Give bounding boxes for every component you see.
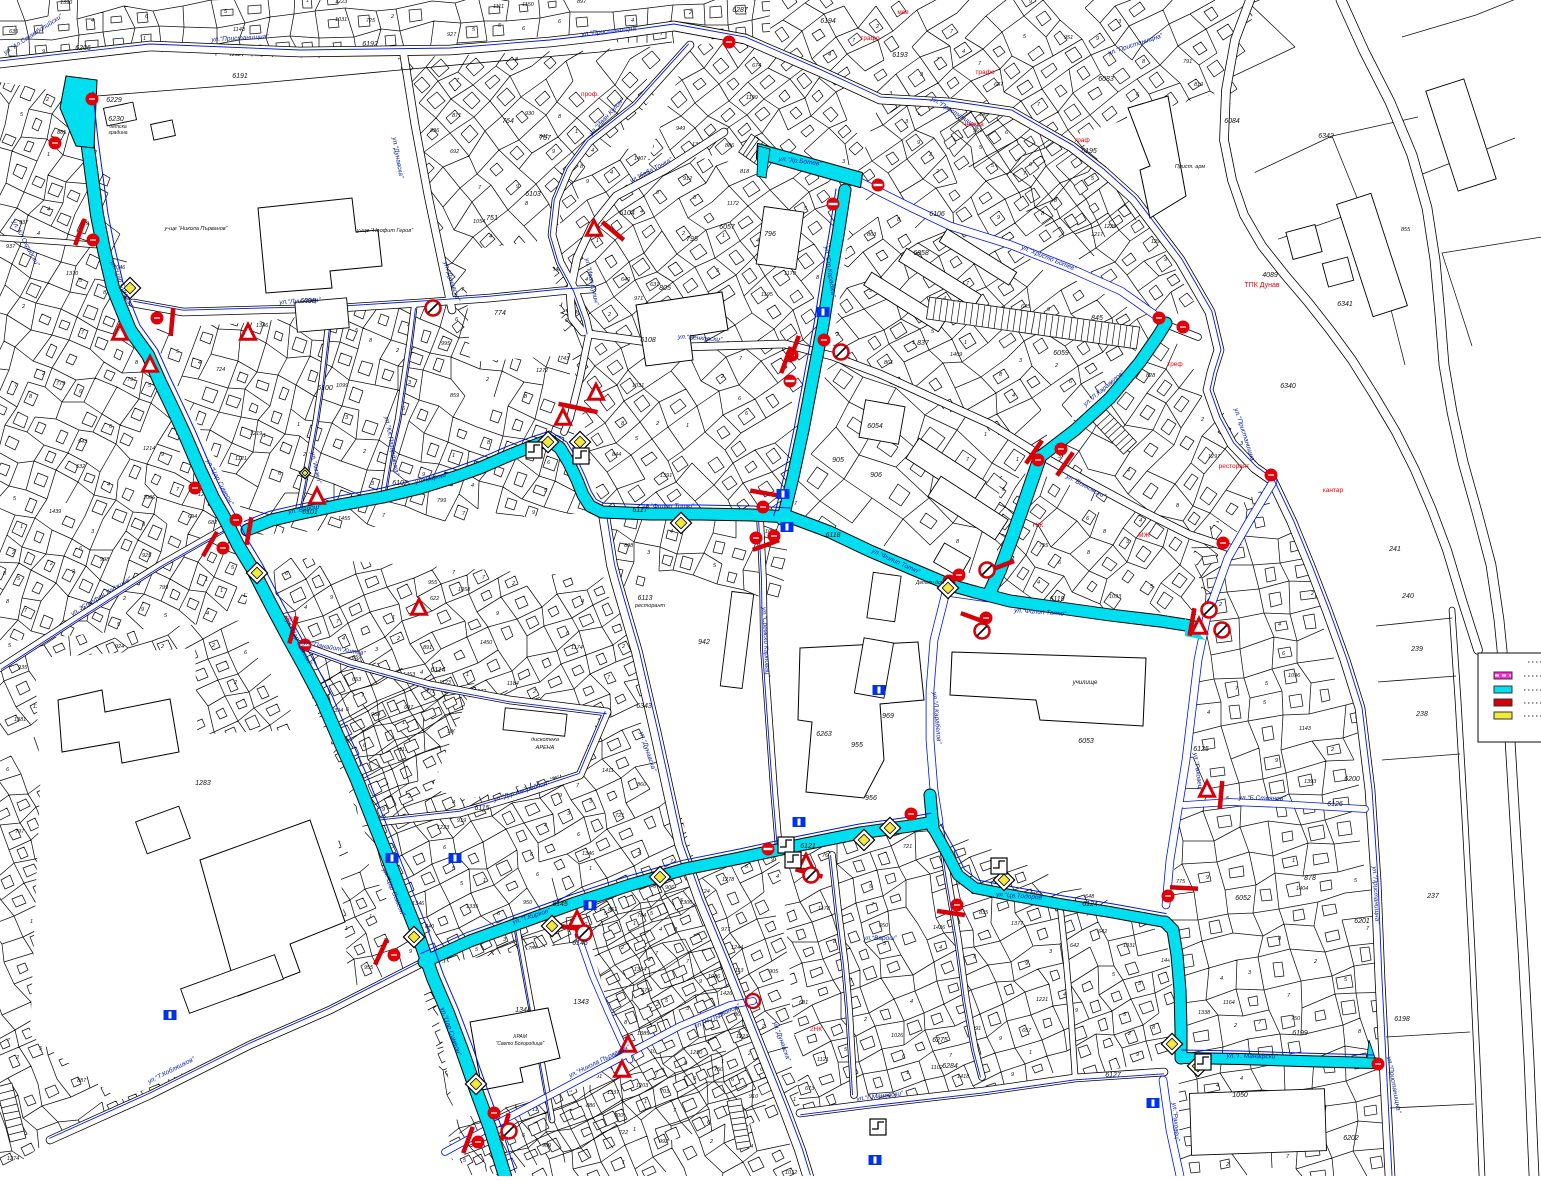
svg-text:9: 9	[496, 611, 499, 617]
svg-text:4: 4	[591, 148, 594, 154]
svg-text:трафо: трафо	[860, 35, 880, 42]
svg-text:1393: 1393	[1304, 779, 1317, 785]
svg-text:6108: 6108	[640, 337, 656, 344]
svg-text:4: 4	[471, 483, 474, 489]
svg-text:648: 648	[1085, 894, 1095, 900]
svg-text:743: 743	[560, 356, 570, 362]
svg-text:767: 767	[539, 135, 552, 142]
svg-text:750: 750	[714, 1067, 724, 1073]
svg-text:2: 2	[45, 97, 49, 103]
svg-text:1283: 1283	[195, 780, 211, 787]
svg-text:844: 844	[612, 452, 621, 458]
svg-text:642: 642	[1070, 943, 1079, 949]
svg-text:795: 795	[686, 236, 698, 243]
svg-text:1306: 1306	[680, 900, 693, 906]
svg-text:6192: 6192	[362, 41, 378, 48]
svg-text:855: 855	[1401, 227, 1411, 233]
svg-text:835: 835	[979, 910, 989, 916]
svg-text:1109: 1109	[746, 95, 758, 101]
svg-text:9: 9	[1136, 1052, 1139, 1058]
svg-text:9: 9	[552, 149, 555, 155]
svg-text:2: 2	[396, 636, 400, 642]
svg-text:632: 632	[76, 464, 85, 470]
svg-text:4: 4	[610, 170, 613, 176]
svg-text:1102: 1102	[931, 1065, 943, 1071]
svg-text:779: 779	[56, 381, 65, 387]
svg-text:1426: 1426	[933, 925, 946, 931]
svg-text:1093: 1093	[1109, 594, 1122, 600]
svg-text:2: 2	[21, 304, 25, 310]
svg-text:6199: 6199	[1292, 1030, 1308, 1037]
svg-text:1012: 1012	[785, 1170, 797, 1176]
svg-text:ТПК Дунав: ТПК Дунав	[1244, 282, 1279, 289]
svg-text:2: 2	[41, 371, 45, 377]
svg-text:1455: 1455	[338, 516, 351, 522]
svg-text:1338: 1338	[1198, 1010, 1211, 1016]
svg-text:4: 4	[1063, 992, 1066, 998]
svg-text:2: 2	[362, 449, 366, 455]
svg-text:955: 955	[364, 965, 374, 971]
svg-text:дискотека: дискотека	[531, 737, 559, 743]
svg-text:4: 4	[1216, 1083, 1219, 1089]
svg-text:998: 998	[100, 557, 110, 563]
svg-text:886: 886	[725, 143, 735, 149]
svg-text:2: 2	[747, 1051, 751, 1057]
svg-text:МЖ: МЖ	[1138, 532, 1149, 539]
svg-text:4: 4	[47, 207, 50, 213]
svg-text:1143: 1143	[1299, 726, 1312, 732]
svg-text:9: 9	[161, 452, 164, 458]
svg-text:4: 4	[489, 234, 492, 240]
svg-text:4089: 4089	[1262, 272, 1278, 279]
svg-text:6084: 6084	[1224, 118, 1240, 125]
svg-text:мсв: мсв	[897, 9, 909, 16]
svg-text:2: 2	[863, 1017, 867, 1023]
svg-text:905: 905	[769, 969, 779, 975]
svg-text:1: 1	[30, 919, 33, 925]
svg-text:2: 2	[935, 169, 939, 175]
svg-text:9: 9	[917, 140, 920, 146]
svg-text:6098: 6098	[300, 298, 316, 305]
svg-text:1: 1	[205, 577, 208, 583]
svg-text:4: 4	[828, 52, 831, 58]
svg-text:673: 673	[805, 1086, 815, 1092]
svg-text:2: 2	[1200, 417, 1204, 423]
svg-text:6100: 6100	[317, 385, 333, 392]
svg-text:2: 2	[709, 1139, 713, 1145]
svg-text:6127: 6127	[1105, 1072, 1122, 1079]
svg-text:1335: 1335	[466, 904, 479, 910]
svg-text:проф.: проф.	[581, 91, 599, 98]
svg-text:6113: 6113	[637, 595, 652, 602]
svg-text:9: 9	[1096, 36, 1099, 42]
svg-text:6341: 6341	[1337, 301, 1353, 308]
svg-text:6058: 6058	[913, 250, 929, 257]
svg-text:955: 955	[428, 580, 438, 586]
svg-text:1: 1	[633, 921, 636, 927]
svg-text:9: 9	[999, 1036, 1002, 1042]
svg-text:2: 2	[655, 421, 659, 427]
svg-text:751: 751	[486, 215, 498, 222]
svg-text:2: 2	[761, 1024, 765, 1030]
svg-text:645: 645	[1021, 304, 1031, 310]
svg-text:924: 924	[115, 644, 124, 650]
svg-text:9: 9	[1029, 0, 1032, 5]
svg-text:1054: 1054	[473, 219, 485, 225]
svg-text:2: 2	[875, 24, 879, 30]
svg-text:4: 4	[962, 49, 965, 55]
svg-text:1: 1	[721, 1059, 724, 1065]
svg-text:927: 927	[447, 32, 457, 38]
svg-text:1: 1	[984, 432, 987, 438]
svg-text:9: 9	[1164, 257, 1167, 263]
svg-text:9: 9	[1075, 1008, 1078, 1014]
svg-text:1219: 1219	[250, 431, 262, 437]
svg-text:1: 1	[220, 588, 223, 594]
svg-text:992: 992	[659, 1139, 668, 1145]
svg-text:9: 9	[1025, 961, 1028, 967]
svg-text:9: 9	[382, 807, 385, 813]
svg-text:863: 863	[867, 232, 877, 238]
svg-text:1195: 1195	[761, 292, 774, 298]
svg-text:1: 1	[47, 152, 50, 158]
svg-text:1439: 1439	[49, 509, 61, 515]
svg-text:687: 687	[994, 82, 1004, 88]
svg-text:2: 2	[122, 596, 126, 602]
svg-text:1274: 1274	[7, 1156, 19, 1162]
svg-text:2: 2	[621, 644, 625, 650]
svg-text:912: 912	[683, 176, 692, 182]
svg-text:6059: 6059	[1053, 350, 1069, 357]
svg-text:1418: 1418	[957, 1074, 970, 1080]
svg-text:2: 2	[1127, 1031, 1131, 1037]
svg-text:9: 9	[586, 179, 589, 185]
svg-text:4: 4	[910, 999, 913, 1005]
svg-text:1343: 1343	[573, 999, 589, 1006]
svg-text:2НК: 2НК	[810, 1026, 822, 1033]
svg-text:9: 9	[86, 221, 89, 227]
svg-text:2: 2	[407, 794, 411, 800]
svg-text:9: 9	[1206, 875, 1209, 881]
svg-text:1: 1	[912, 340, 915, 346]
svg-text:9: 9	[532, 510, 535, 516]
svg-text:4: 4	[670, 529, 673, 535]
svg-text:1390: 1390	[60, 0, 73, 6]
svg-text:1344: 1344	[515, 1007, 531, 1014]
svg-text:1: 1	[297, 422, 300, 428]
svg-text:1: 1	[686, 423, 689, 429]
svg-text:721: 721	[615, 813, 624, 819]
svg-text:1331: 1331	[1123, 943, 1135, 949]
svg-text:1: 1	[1016, 457, 1019, 463]
svg-text:1: 1	[306, 0, 309, 4]
svg-text:1: 1	[466, 672, 469, 678]
svg-text:724: 724	[216, 367, 225, 373]
svg-text:681: 681	[799, 1000, 808, 1006]
svg-text:1: 1	[633, 1127, 636, 1133]
svg-text:818: 818	[740, 169, 750, 175]
svg-text:1297: 1297	[1208, 454, 1221, 460]
svg-text:2: 2	[390, 14, 394, 20]
svg-text:622: 622	[430, 596, 439, 602]
svg-text:трафо: трафо	[975, 69, 995, 76]
svg-text:692: 692	[450, 149, 459, 155]
svg-text:774: 774	[494, 310, 506, 317]
svg-text:791: 791	[1183, 59, 1192, 65]
svg-text:6106: 6106	[929, 211, 945, 218]
svg-text:1: 1	[263, 433, 266, 439]
svg-text:942: 942	[698, 639, 710, 646]
svg-text:2: 2	[1225, 1162, 1229, 1168]
svg-text:1411: 1411	[602, 768, 614, 774]
svg-text:ул.“Филип Тотю”: ул.“Филип Тотю”	[641, 503, 695, 510]
svg-text:2: 2	[1330, 747, 1334, 753]
svg-text:2: 2	[1313, 959, 1317, 965]
svg-text:4: 4	[342, 636, 345, 642]
svg-text:6102: 6102	[392, 480, 408, 487]
svg-text:у-ще “Никола Първанов”: у-ще “Никола Първанов”	[164, 226, 229, 232]
svg-text:2: 2	[1054, 363, 1058, 369]
svg-text:2: 2	[928, 152, 932, 158]
svg-text:885: 885	[57, 130, 67, 136]
svg-text:2: 2	[1233, 1023, 1237, 1029]
svg-text:1121: 1121	[235, 456, 247, 462]
svg-text:у-ще “Неофит Геров”: у-ще “Неофит Геров”	[356, 228, 414, 234]
svg-text:909: 909	[542, 1143, 551, 1149]
svg-text:845: 845	[1091, 315, 1103, 322]
svg-text:650: 650	[879, 923, 889, 929]
svg-text:6229: 6229	[106, 97, 122, 104]
svg-text:2: 2	[511, 581, 515, 587]
svg-text:819: 819	[1194, 82, 1203, 88]
svg-text:1031: 1031	[335, 17, 347, 23]
svg-text:675: 675	[641, 988, 651, 994]
svg-text:240: 240	[1401, 593, 1414, 600]
svg-text:2: 2	[49, 561, 53, 567]
svg-text:6230: 6230	[108, 116, 124, 123]
svg-text:9: 9	[559, 793, 562, 799]
svg-text:797: 797	[127, 377, 137, 383]
svg-text:6125: 6125	[1193, 746, 1209, 753]
svg-text:910: 910	[749, 1094, 759, 1100]
svg-text:1184: 1184	[507, 681, 519, 687]
svg-text:1426: 1426	[720, 991, 733, 997]
svg-text:241: 241	[1388, 546, 1401, 553]
svg-text:1: 1	[964, 340, 967, 346]
svg-text:траф: траф	[1074, 137, 1090, 144]
svg-text:799: 799	[437, 498, 446, 504]
svg-text:6191: 6191	[232, 73, 248, 80]
svg-text:1174: 1174	[571, 645, 583, 651]
svg-text:1: 1	[589, 866, 592, 872]
svg-text:828: 828	[1146, 373, 1156, 379]
svg-text:6053: 6053	[1078, 738, 1094, 745]
svg-text:969: 969	[882, 713, 894, 720]
svg-text:9: 9	[141, 607, 144, 613]
svg-text:2: 2	[1310, 591, 1314, 597]
svg-text:4: 4	[638, 850, 641, 856]
svg-text:861: 861	[884, 360, 893, 366]
svg-text:1172: 1172	[727, 201, 739, 207]
svg-text:Черква: Черква	[962, 121, 984, 128]
svg-text:ул.“Г. Манафски”: ул.“Г. Манафски”	[1225, 1053, 1278, 1061]
svg-text:НЖ: НЖ	[1033, 522, 1044, 529]
svg-text:674: 674	[752, 63, 761, 69]
svg-text:4: 4	[304, 605, 307, 611]
svg-text:657: 657	[1022, 1028, 1032, 1034]
svg-text:Детски дом: Детски дом	[915, 580, 945, 586]
svg-text:1346: 1346	[256, 323, 269, 329]
svg-text:1111: 1111	[493, 4, 504, 10]
svg-text:6126: 6126	[1327, 801, 1343, 808]
svg-text:2: 2	[647, 957, 651, 963]
svg-text:703: 703	[660, 1089, 670, 1095]
svg-text:2: 2	[620, 945, 624, 951]
svg-text:6114: 6114	[430, 667, 445, 674]
svg-text:950: 950	[523, 900, 533, 906]
svg-text:2: 2	[532, 689, 536, 695]
svg-text:1: 1	[575, 129, 578, 135]
svg-text:1: 1	[483, 878, 486, 884]
svg-text:6263: 6263	[816, 731, 832, 738]
svg-text:Прист. арм: Прист. арм	[1175, 164, 1205, 170]
svg-text:ресторант: ресторант	[1219, 463, 1250, 470]
svg-text:642: 642	[1098, 929, 1107, 935]
svg-text:1096: 1096	[1288, 673, 1301, 679]
svg-text:1370: 1370	[66, 271, 79, 277]
svg-text:871: 871	[452, 113, 461, 119]
svg-text:775: 775	[1176, 879, 1186, 885]
svg-text:1: 1	[345, 926, 348, 932]
svg-text:6054: 6054	[867, 423, 883, 430]
svg-text:238: 238	[1415, 711, 1428, 718]
svg-text:4: 4	[107, 482, 110, 488]
svg-text:725: 725	[366, 18, 376, 24]
svg-text:1381: 1381	[14, 717, 26, 723]
svg-text:4: 4	[1278, 622, 1281, 628]
svg-text:808: 808	[624, 543, 634, 549]
svg-text:2: 2	[302, 452, 306, 458]
svg-text:1377: 1377	[1011, 921, 1024, 927]
svg-text:1404: 1404	[1296, 886, 1308, 892]
svg-text:1: 1	[452, 453, 455, 459]
svg-text:721: 721	[903, 844, 912, 850]
svg-text:1: 1	[369, 914, 372, 920]
svg-text:653: 653	[352, 677, 362, 683]
svg-text:4: 4	[544, 823, 547, 829]
svg-text:4: 4	[1207, 710, 1210, 716]
svg-text:4: 4	[756, 238, 759, 244]
svg-text:ул.“Варош”: ул.“Варош”	[862, 935, 897, 942]
svg-text:1: 1	[143, 36, 146, 42]
svg-text:2: 2	[688, 10, 692, 16]
svg-text:АРЕНА: АРЕНА	[535, 745, 555, 751]
svg-text:1469: 1469	[950, 352, 962, 358]
svg-text:6145: 6145	[552, 901, 568, 908]
svg-text:2: 2	[11, 550, 15, 556]
svg-text:2: 2	[835, 332, 839, 338]
svg-text:6206: 6206	[75, 45, 91, 52]
svg-text:4: 4	[206, 611, 209, 617]
svg-text:1: 1	[722, 233, 725, 239]
svg-text:764: 764	[502, 118, 514, 125]
svg-text:2: 2	[211, 643, 215, 649]
svg-text:6200: 6200	[1344, 776, 1360, 783]
svg-text:1: 1	[906, 1070, 909, 1076]
svg-text:1272: 1272	[536, 368, 548, 374]
svg-text:878: 878	[1304, 875, 1316, 882]
svg-text:4: 4	[939, 945, 942, 951]
svg-text:6117: 6117	[632, 507, 648, 514]
svg-text:2: 2	[720, 374, 724, 380]
svg-text:1: 1	[1029, 1050, 1032, 1056]
svg-text:9: 9	[1047, 307, 1050, 313]
svg-text:1346: 1346	[582, 851, 595, 857]
svg-text:6194: 6194	[820, 18, 836, 25]
svg-text:6146: 6146	[572, 940, 588, 947]
svg-text:1050: 1050	[1232, 1092, 1248, 1099]
svg-text:897: 897	[577, 0, 587, 5]
svg-text:6201: 6201	[1354, 918, 1370, 925]
svg-text:1450: 1450	[480, 640, 493, 646]
svg-text:694: 694	[188, 514, 197, 520]
svg-text:239: 239	[1410, 646, 1423, 653]
svg-text:797: 797	[15, 829, 25, 835]
svg-text:943: 943	[78, 439, 88, 445]
svg-text:1225: 1225	[1104, 224, 1117, 230]
svg-text:968: 968	[371, 712, 381, 718]
svg-text:2: 2	[15, 1055, 19, 1061]
svg-text:1230: 1230	[690, 1050, 703, 1056]
svg-text:1170: 1170	[784, 271, 797, 277]
svg-text:6195: 6195	[1081, 148, 1097, 155]
svg-text:1: 1	[622, 1160, 625, 1166]
svg-text:1143: 1143	[233, 27, 246, 33]
svg-text:635: 635	[9, 29, 19, 35]
svg-text:2: 2	[607, 312, 611, 318]
svg-text:750: 750	[1291, 1016, 1301, 1022]
svg-text:949: 949	[676, 126, 685, 132]
svg-text:ХРАМ: ХРАМ	[512, 1034, 528, 1040]
svg-text:905: 905	[832, 457, 844, 464]
svg-text:ресторант: ресторант	[634, 603, 666, 609]
svg-text:956: 956	[865, 795, 877, 802]
svg-text:6052: 6052	[1235, 895, 1251, 902]
svg-text:1: 1	[644, 1099, 647, 1105]
svg-text:799: 799	[159, 585, 168, 591]
svg-text:937: 937	[6, 244, 16, 250]
svg-text:1099: 1099	[336, 383, 348, 389]
svg-text:6119: 6119	[1049, 596, 1064, 603]
svg-text:6118: 6118	[825, 532, 840, 539]
svg-text:9: 9	[1011, 1072, 1014, 1078]
svg-text:2: 2	[395, 348, 399, 354]
svg-text:1203: 1203	[636, 1083, 649, 1089]
svg-text:805: 805	[659, 285, 671, 292]
svg-text:906: 906	[870, 472, 882, 479]
svg-text:4: 4	[420, 670, 423, 676]
svg-text:837: 837	[917, 340, 930, 347]
svg-text:1164: 1164	[1223, 1000, 1235, 1006]
svg-text:6198: 6198	[1394, 1016, 1410, 1023]
svg-text:1: 1	[1292, 858, 1295, 864]
svg-text:1150: 1150	[522, 2, 535, 8]
svg-text:682: 682	[208, 520, 217, 526]
svg-text:9: 9	[1275, 758, 1278, 764]
svg-text:955: 955	[851, 742, 863, 749]
svg-text:237: 237	[1426, 893, 1440, 900]
svg-text:1086: 1086	[143, 495, 156, 501]
